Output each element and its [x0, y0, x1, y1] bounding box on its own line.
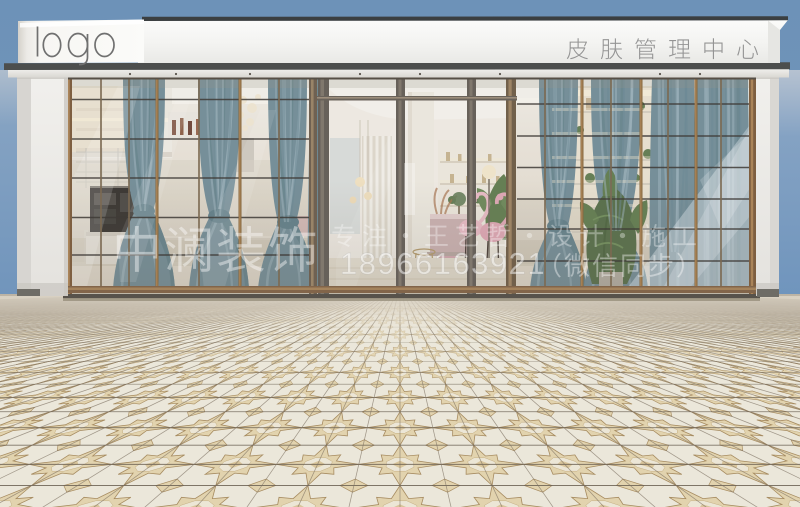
svg-text:18966163921: 18966163921 [340, 246, 546, 281]
